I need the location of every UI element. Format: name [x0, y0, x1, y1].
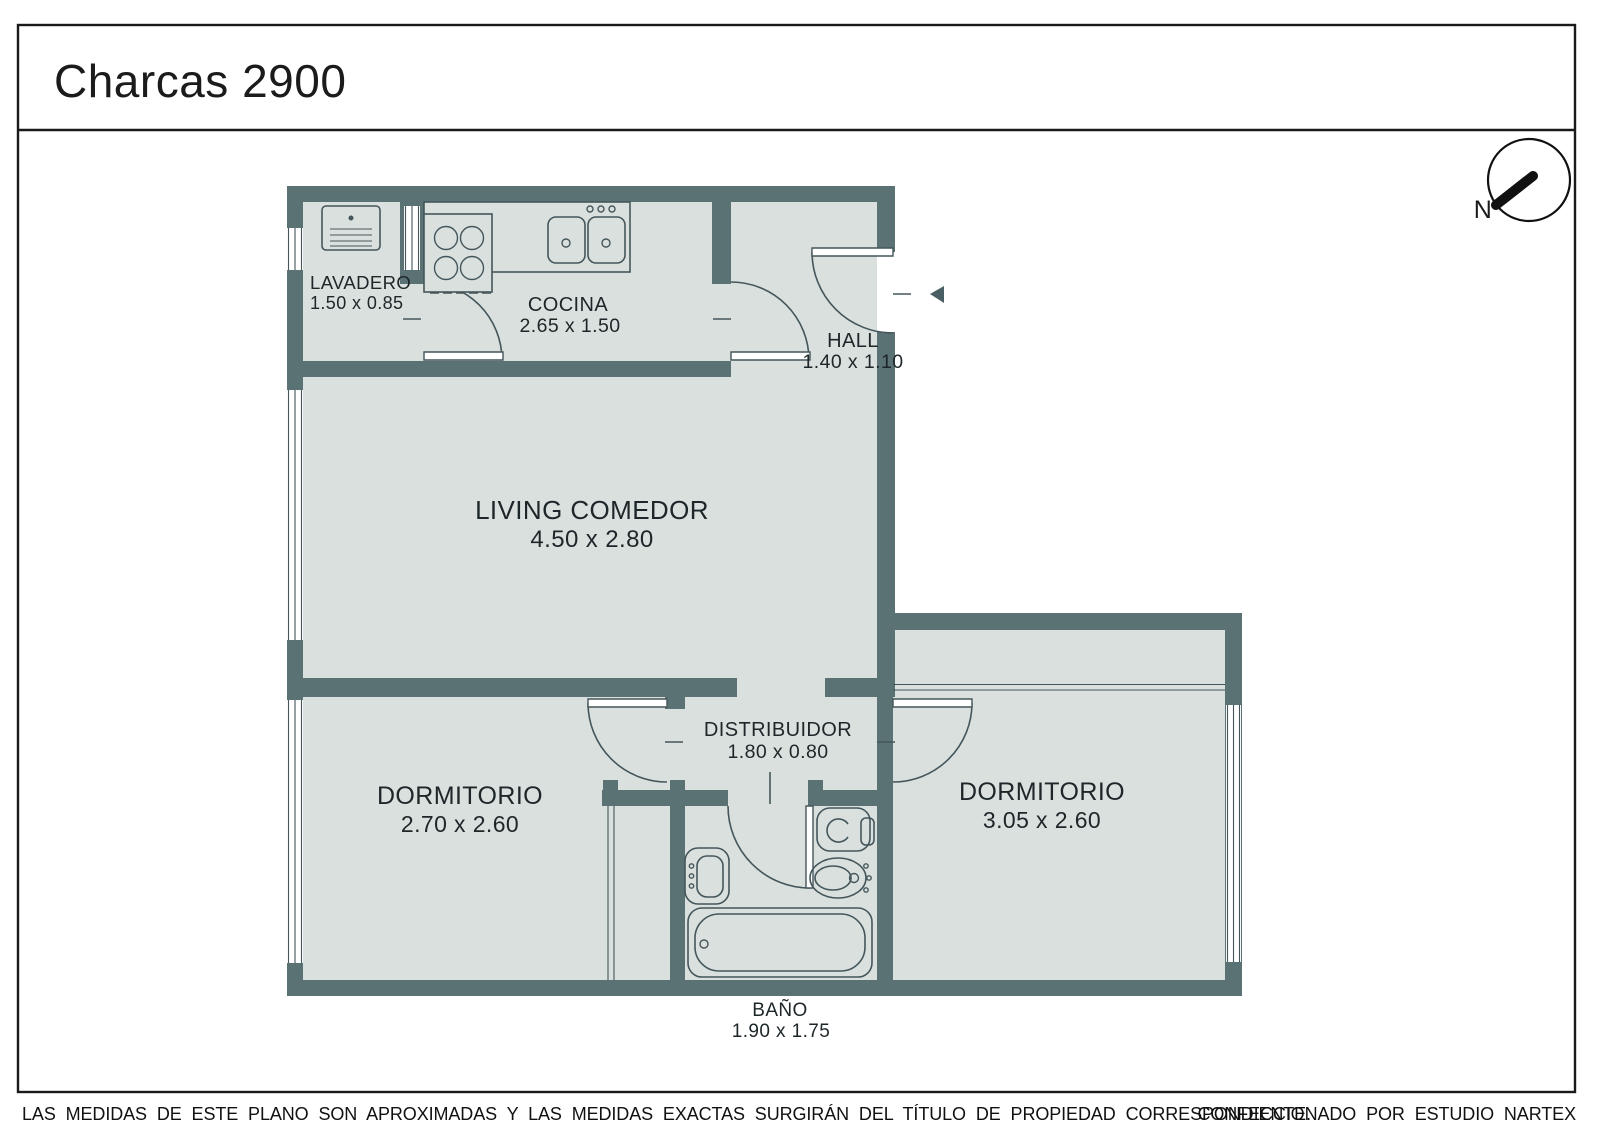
page-title: Charcas 2900 [54, 55, 346, 107]
footer-disclaimer: LAS MEDIDAS DE ESTE PLANO SON APROXIMADA… [22, 1104, 1311, 1124]
room-dims-lavadero: 1.50 x 0.85 [310, 293, 403, 313]
footer: LAS MEDIDAS DE ESTE PLANO SON APROXIMADA… [22, 1104, 1576, 1124]
floor-plan-canvas: Charcas 2900 [0, 0, 1600, 1131]
room-dims-cocina: 2.65 x 1.50 [520, 315, 621, 337]
washing-machine-icon [322, 206, 380, 250]
room-dims-living: 4.50 x 2.80 [530, 526, 653, 553]
room-dims-dormitorio-der: 3.05 x 2.60 [983, 807, 1101, 833]
room-dims-bano: 1.90 x 1.75 [732, 1021, 830, 1042]
room-label-distribuidor: DISTRIBUIDOR [704, 719, 852, 741]
room-dims-hall: 1.40 x 1.10 [803, 351, 904, 373]
room-label-bano: BAÑO [752, 999, 807, 1021]
room-dims-distribuidor: 1.80 x 0.80 [728, 741, 829, 763]
compass-north-label: N [1474, 196, 1493, 224]
room-label-hall: HALL [827, 330, 879, 352]
room-label-living: LIVING COMEDOR [475, 495, 709, 525]
compass-icon: N [1474, 139, 1570, 224]
footer-credit: CONFECCIONADO POR ESTUDIO NARTEX [1197, 1104, 1576, 1124]
stove-icon [424, 214, 492, 293]
entrance-arrow-icon [930, 286, 944, 303]
room-label-cocina: COCINA [528, 294, 608, 316]
room-label-lavadero: LAVADERO [310, 272, 411, 293]
room-label-dormitorio-der: DORMITORIO [959, 778, 1125, 806]
room-label-dormitorio-izq: DORMITORIO [377, 782, 543, 810]
room-dims-dormitorio-izq: 2.70 x 2.60 [401, 811, 519, 837]
